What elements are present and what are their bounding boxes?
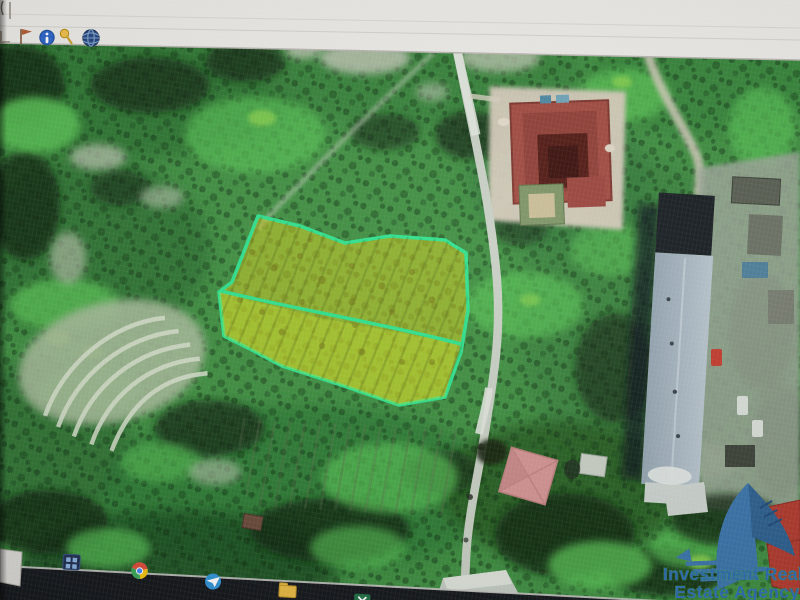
brown-hut [242, 514, 263, 531]
info-icon[interactable] [40, 30, 54, 44]
red-car [711, 349, 722, 366]
white-car [737, 396, 748, 415]
start-icon[interactable] [63, 554, 81, 570]
white-car [752, 420, 763, 437]
watermark-line1: Investment Real [663, 564, 800, 584]
red-roof-building [484, 82, 631, 235]
window-corner-fragment [0, 549, 22, 586]
photographed-screen: Investment Real Estate Agency [0, 0, 800, 600]
field-rows [235, 418, 465, 516]
satellite-map[interactable] [0, 0, 800, 600]
watermark-line2: Estate Agency [674, 582, 799, 600]
globe-icon[interactable] [83, 30, 99, 46]
excel-icon[interactable] [354, 593, 371, 600]
building-end-roof [664, 482, 708, 516]
